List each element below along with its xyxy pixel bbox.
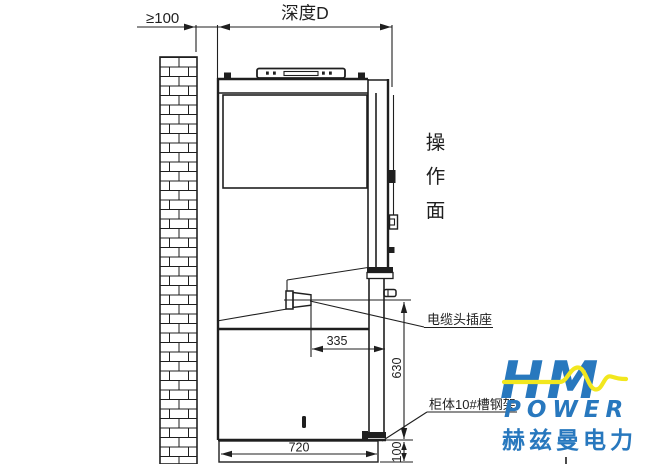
operation-face-label: 操 作 面 bbox=[426, 132, 447, 222]
roof-bolt-icon bbox=[224, 73, 231, 79]
operation-face-char: 面 bbox=[426, 200, 447, 222]
brick-wall bbox=[160, 57, 197, 464]
arrow-icon bbox=[401, 302, 407, 313]
door-hinge-mark bbox=[389, 247, 395, 253]
arrow-icon bbox=[380, 24, 391, 31]
roof-handle-dot bbox=[329, 72, 332, 75]
cabinet-lines-medium bbox=[218, 79, 388, 432]
column-foot-pad bbox=[362, 431, 368, 440]
cabinet-side-view-drawing: ≥100 深度D bbox=[0, 0, 650, 464]
roof-handle-dot bbox=[273, 72, 276, 75]
dimension-720: 720 bbox=[221, 441, 377, 458]
column-foot bbox=[365, 432, 386, 438]
roof-bolt-icon bbox=[358, 73, 365, 79]
arrow-icon bbox=[312, 346, 323, 352]
arrow-icon bbox=[221, 451, 232, 457]
logo-name: POWER bbox=[504, 397, 629, 423]
socket-offset-dimension: 335 bbox=[327, 334, 348, 348]
front-panel-step bbox=[367, 267, 393, 273]
drawing-canvas: ≥100 深度D bbox=[0, 0, 650, 464]
door-latch bbox=[390, 215, 398, 229]
upper-door-panel bbox=[223, 95, 367, 188]
cabinet-body bbox=[217, 69, 411, 463]
dimension-630-100: 630 100 bbox=[380, 302, 413, 462]
base-height-dimension: 100 bbox=[390, 442, 404, 463]
door-handle bbox=[388, 170, 396, 183]
cable-socket-label: 电缆头插座 bbox=[427, 312, 492, 327]
operation-face-char: 操 bbox=[426, 132, 447, 154]
leader-labels: 电缆头插座 柜体10#槽钢架 bbox=[310, 301, 517, 441]
operation-face-char: 作 bbox=[426, 166, 447, 188]
company-logo: HM POWER 赫兹曼电力 bbox=[500, 351, 637, 464]
front-panel-step-lower bbox=[367, 273, 393, 279]
channel-frame-leader bbox=[382, 412, 517, 441]
roof-handle-dot bbox=[266, 72, 269, 75]
logo-chinese-name: 赫兹曼电力 bbox=[502, 427, 637, 454]
arrow-icon bbox=[401, 428, 407, 439]
wall-gap-dimension: ≥100 bbox=[146, 10, 179, 27]
roof-handle-slot bbox=[284, 72, 318, 76]
arrow-icon bbox=[366, 451, 377, 457]
base-depth-dimension: 720 bbox=[289, 441, 310, 455]
socket-knob bbox=[384, 290, 396, 297]
arrow-icon bbox=[184, 24, 195, 31]
cabinet-outline-thick bbox=[218, 78, 388, 440]
depth-dimension: 深度D bbox=[281, 3, 329, 23]
socket-height-dimension: 630 bbox=[390, 358, 404, 379]
wall-hatch bbox=[160, 57, 197, 464]
roof-handle-dot bbox=[322, 72, 325, 75]
door-latch-notch bbox=[390, 219, 395, 225]
lower-bolt-icon bbox=[302, 416, 306, 428]
arrow-icon bbox=[219, 24, 230, 31]
